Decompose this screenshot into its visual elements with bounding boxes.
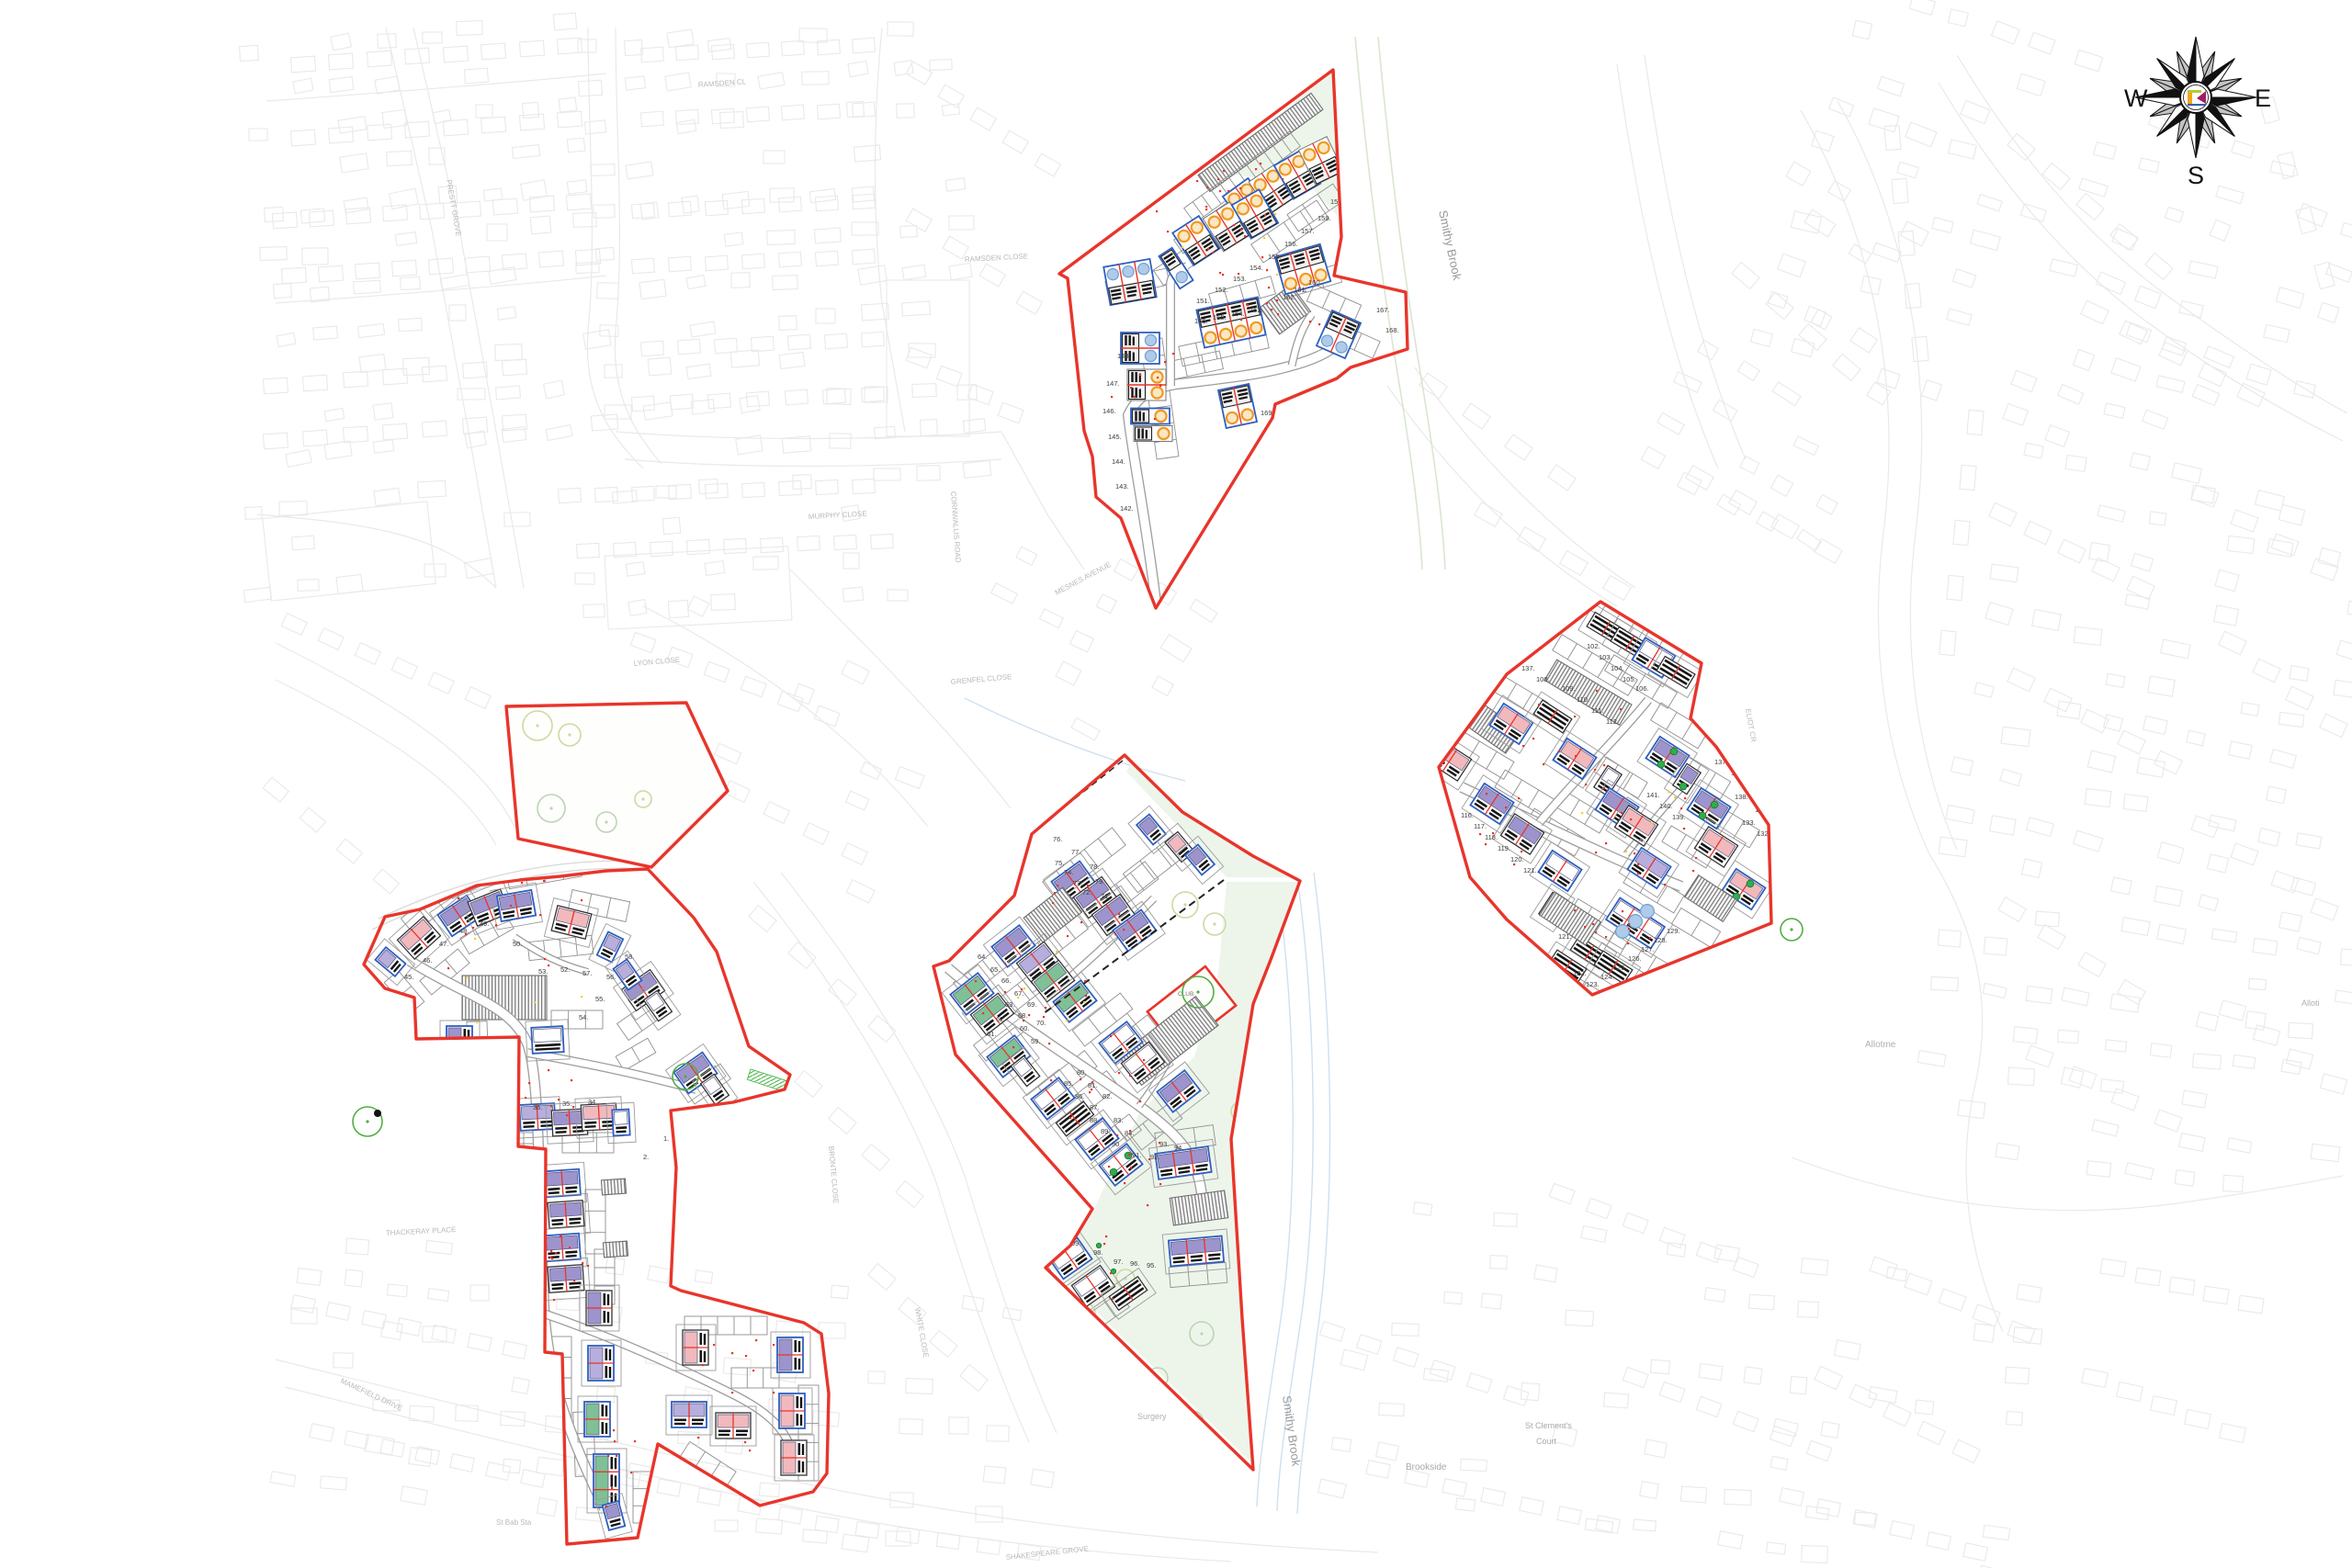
svg-text:157.: 157. xyxy=(1301,227,1315,235)
svg-text:121.: 121. xyxy=(1558,932,1572,941)
svg-text:90: 90 xyxy=(1112,1140,1119,1148)
svg-text:94.: 94. xyxy=(1174,1144,1183,1152)
svg-text:164.: 164. xyxy=(1231,310,1245,318)
svg-text:133.: 133. xyxy=(1742,818,1756,827)
svg-text:82.: 82. xyxy=(1102,1092,1112,1100)
svg-text:93.: 93. xyxy=(1159,1140,1169,1148)
svg-text:35.: 35. xyxy=(562,1100,571,1108)
svg-text:55.: 55. xyxy=(595,995,605,1003)
svg-text:Court: Court xyxy=(1536,1437,1557,1446)
svg-text:151.: 151. xyxy=(1196,297,1210,305)
svg-text:112.: 112. xyxy=(1606,717,1619,726)
svg-text:124.: 124. xyxy=(1600,973,1614,981)
svg-text:155.: 155. xyxy=(1268,253,1282,261)
svg-text:104.: 104. xyxy=(1611,664,1624,672)
svg-text:59.: 59. xyxy=(1031,1037,1040,1045)
svg-text:S: S xyxy=(2188,162,2204,189)
svg-text:163.: 163. xyxy=(1249,306,1263,314)
svg-text:73.: 73. xyxy=(1073,879,1082,887)
svg-text:61.: 61. xyxy=(987,1030,996,1038)
svg-text:80.: 80. xyxy=(1077,1068,1086,1077)
svg-text:168.: 168. xyxy=(1385,326,1399,334)
svg-text:156.: 156. xyxy=(1284,240,1298,248)
svg-text:153.: 153. xyxy=(1233,275,1247,283)
svg-text:76.: 76. xyxy=(1053,835,1062,843)
svg-text:72.: 72. xyxy=(1082,888,1091,897)
svg-text:141.: 141. xyxy=(1646,791,1660,799)
svg-text:116.: 116. xyxy=(1461,811,1474,819)
svg-text:74.: 74. xyxy=(1064,868,1073,876)
svg-text:144.: 144. xyxy=(1112,457,1125,466)
svg-text:96.: 96. xyxy=(1130,1259,1139,1268)
svg-text:54.: 54. xyxy=(579,1013,588,1021)
svg-text:89.: 89. xyxy=(1101,1127,1110,1135)
svg-text:118.: 118. xyxy=(1485,833,1498,841)
svg-text:1.: 1. xyxy=(663,1134,669,1143)
svg-text:88.: 88. xyxy=(1090,1116,1099,1124)
svg-text:85.: 85. xyxy=(1064,1079,1073,1088)
svg-text:137.: 137. xyxy=(1521,664,1535,672)
svg-text:122.: 122. xyxy=(1573,969,1587,977)
svg-text:48.: 48. xyxy=(459,927,469,935)
svg-text:109.: 109. xyxy=(1562,684,1576,693)
svg-text:46.: 46. xyxy=(423,956,432,964)
svg-text:121.: 121. xyxy=(1523,866,1537,874)
svg-text:125.: 125. xyxy=(1613,964,1627,972)
svg-text:143.: 143. xyxy=(1115,482,1129,491)
svg-text:106.: 106. xyxy=(1635,684,1649,693)
svg-text:70.: 70. xyxy=(1036,1019,1046,1027)
svg-text:Alloti: Alloti xyxy=(2301,998,2320,1008)
svg-text:167.: 167. xyxy=(1376,306,1390,314)
svg-text:142.: 142. xyxy=(1120,504,1134,513)
svg-text:63.: 63. xyxy=(1005,1000,1014,1009)
svg-text:110.: 110. xyxy=(1577,695,1589,704)
svg-text:165.: 165. xyxy=(1213,313,1227,321)
svg-text:78.: 78. xyxy=(1090,863,1099,871)
svg-text:45.: 45. xyxy=(404,973,413,981)
svg-text:117.: 117. xyxy=(1474,822,1487,830)
svg-text:58.: 58. xyxy=(625,953,634,961)
svg-text:158.: 158. xyxy=(1317,214,1331,222)
svg-text:87.: 87. xyxy=(1090,1103,1099,1111)
svg-text:147.: 147. xyxy=(1106,379,1120,388)
svg-text:Brookside: Brookside xyxy=(1406,1462,1447,1472)
svg-text:127.: 127. xyxy=(1641,945,1655,953)
svg-text:154.: 154. xyxy=(1249,264,1263,272)
svg-text:162.: 162. xyxy=(1283,293,1296,301)
svg-text:CLUB: CLUB xyxy=(1178,991,1193,998)
svg-text:102.: 102. xyxy=(1587,642,1600,650)
svg-text:145.: 145. xyxy=(1108,433,1122,441)
svg-text:92.: 92. xyxy=(1150,1153,1159,1161)
svg-text:91.: 91. xyxy=(1132,1151,1141,1159)
svg-text:146.: 146. xyxy=(1102,407,1116,415)
svg-text:St Bab Sta: St Bab Sta xyxy=(496,1518,532,1527)
svg-text:148.: 148. xyxy=(1117,352,1131,360)
svg-text:Allotme: Allotme xyxy=(1865,1040,1896,1050)
svg-text:71.: 71. xyxy=(1101,892,1110,900)
svg-text:105.: 105. xyxy=(1623,675,1636,683)
svg-text:64.: 64. xyxy=(978,953,987,961)
svg-text:129.: 129. xyxy=(1667,927,1680,935)
svg-text:83.: 83. xyxy=(1114,1116,1123,1124)
svg-text:79.: 79. xyxy=(1095,877,1104,886)
svg-text:103.: 103. xyxy=(1599,653,1612,661)
svg-text:152.: 152. xyxy=(1215,286,1228,294)
svg-text:62.: 62. xyxy=(996,1015,1005,1023)
svg-text:86.: 86. xyxy=(1075,1092,1084,1100)
svg-text:126.: 126. xyxy=(1628,954,1642,963)
svg-text:50.: 50. xyxy=(513,940,522,948)
svg-text:95.: 95. xyxy=(1147,1261,1156,1269)
svg-text:E: E xyxy=(2255,85,2271,112)
svg-text:34.: 34. xyxy=(588,1098,597,1106)
svg-text:52.: 52. xyxy=(560,965,570,974)
svg-text:77.: 77. xyxy=(1071,848,1080,856)
svg-text:97.: 97. xyxy=(1114,1258,1123,1266)
svg-text:W: W xyxy=(2124,85,2148,112)
svg-text:111.: 111. xyxy=(1591,706,1603,715)
svg-text:128.: 128. xyxy=(1654,936,1668,944)
svg-text:65.: 65. xyxy=(990,965,1000,974)
svg-text:119.: 119. xyxy=(1498,844,1510,852)
svg-text:139.: 139. xyxy=(1672,813,1686,821)
svg-text:57.: 57. xyxy=(582,969,592,977)
svg-text:56.: 56. xyxy=(606,973,616,981)
svg-text:98.: 98. xyxy=(1093,1248,1102,1257)
svg-text:53.: 53. xyxy=(538,967,548,976)
svg-text:2.: 2. xyxy=(643,1153,649,1161)
svg-text:120.: 120. xyxy=(1510,855,1524,863)
svg-text:108.: 108. xyxy=(1536,675,1550,683)
svg-text:60.: 60. xyxy=(1020,1024,1029,1032)
svg-text:75.: 75. xyxy=(1055,859,1064,867)
svg-text:47.: 47. xyxy=(439,940,448,948)
svg-text:66.: 66. xyxy=(1001,976,1011,985)
svg-text:Surgery: Surgery xyxy=(1137,1412,1167,1421)
svg-text:166.: 166. xyxy=(1194,317,1208,325)
svg-text:123.: 123. xyxy=(1586,980,1600,988)
svg-text:49.: 49. xyxy=(480,919,489,928)
svg-text:St Clement's: St Clement's xyxy=(1525,1421,1572,1430)
svg-text:68.: 68. xyxy=(1018,1011,1027,1020)
svg-text:67.: 67. xyxy=(1014,989,1023,998)
svg-text:160.: 160. xyxy=(1308,278,1322,287)
svg-text:140.: 140. xyxy=(1659,802,1673,810)
svg-text:36.: 36. xyxy=(533,1103,542,1111)
svg-text:69.: 69. xyxy=(1027,1000,1036,1009)
